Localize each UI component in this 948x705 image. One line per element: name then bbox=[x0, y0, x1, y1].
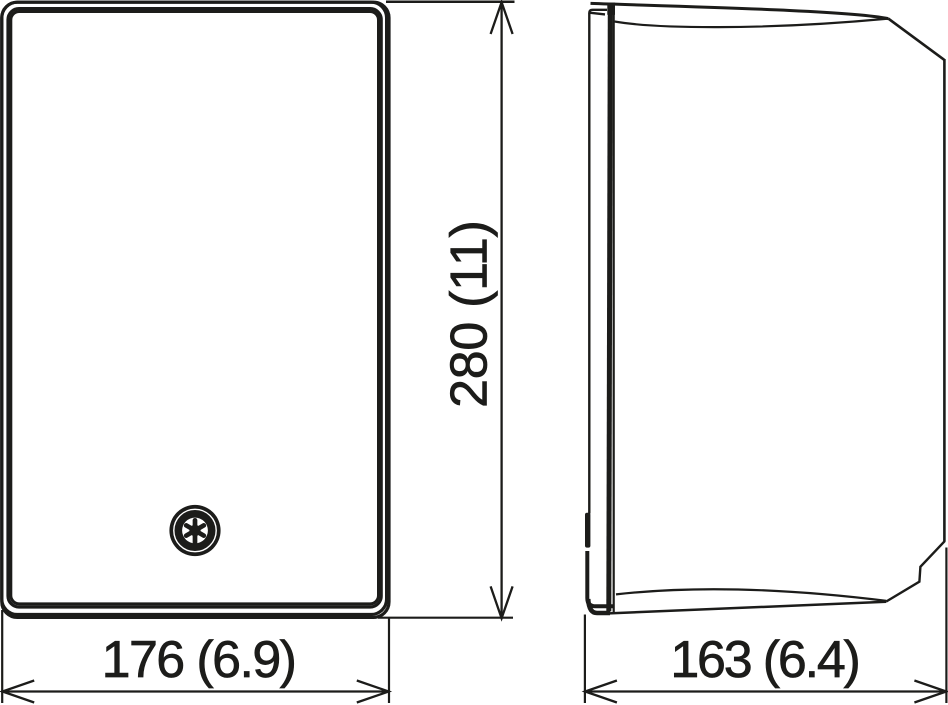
svg-text:280 (11): 280 (11) bbox=[441, 220, 499, 407]
svg-text:176 (6.9): 176 (6.9) bbox=[102, 631, 296, 689]
svg-text:163 (6.4): 163 (6.4) bbox=[670, 631, 858, 689]
